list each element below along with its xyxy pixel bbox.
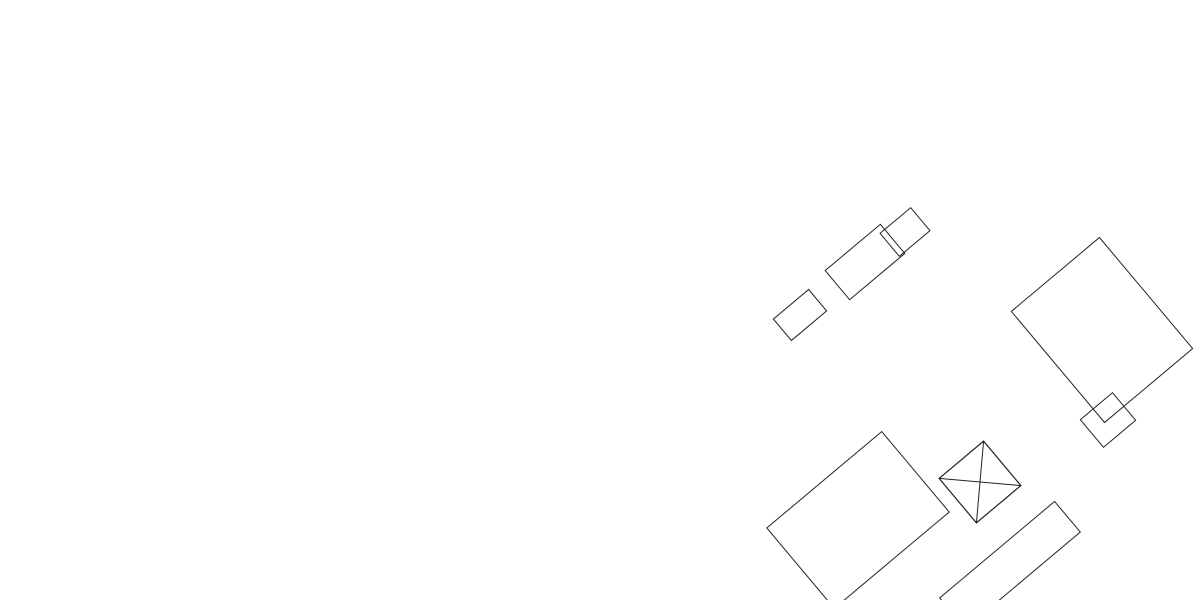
- existing-building: [767, 432, 949, 600]
- building-outline: [940, 501, 1081, 600]
- existing-building: [1011, 238, 1192, 423]
- plan-canvas: [0, 0, 1200, 600]
- existing-building: [825, 224, 905, 299]
- existing-building: [880, 208, 930, 257]
- existing-building: [773, 289, 826, 340]
- site-plan-map: [0, 0, 1200, 600]
